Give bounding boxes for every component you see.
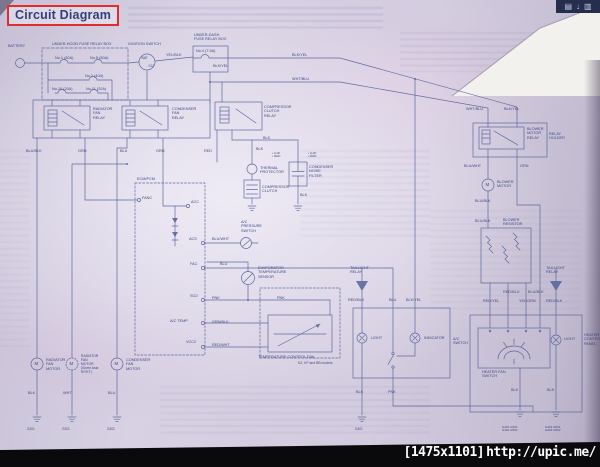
wire-blu-wht-2: BLU/WHT bbox=[464, 164, 481, 168]
radiator-fan-relay-label: RADIATOR FAN RELAY bbox=[93, 107, 112, 120]
wire-blk-6: BLK bbox=[547, 388, 554, 392]
taillight-relay-label-2: TAILLIGHT RELAY bbox=[546, 266, 565, 275]
filter-lhd-rhd-left: • LHD • RHD bbox=[272, 152, 280, 159]
fuse-no10-label: No.10 (20A) bbox=[52, 87, 72, 91]
evaporator-sensor-label: EVAPORATOR TEMPERATURE SENSOR bbox=[258, 266, 286, 279]
motor-m-2: M bbox=[70, 361, 74, 366]
page-title-text: Circuit Diagram bbox=[15, 8, 111, 22]
ac-switch-label: A/C SWITCH bbox=[453, 337, 468, 346]
ac-pressure-switch-label: A/C PRESSURE SWITCH bbox=[241, 220, 262, 233]
ecm-pcm-label: ECM/PCM bbox=[137, 177, 155, 181]
wire-yel-grn-1: YEL/GRN bbox=[519, 299, 536, 303]
condenser-fan-relay-label: CONDENSER FAN RELAY bbox=[172, 107, 196, 120]
wire-blu-1: BLU bbox=[120, 149, 127, 153]
wire-yel-blk-1: YEL/BLK bbox=[166, 53, 181, 57]
taillight-relay-label-1: TAILLIGHT RELAY bbox=[350, 266, 369, 275]
wire-blk-3: BLK bbox=[300, 193, 307, 197]
relay-holder-label: RELAY HOLDER bbox=[549, 132, 565, 141]
condenser-fan-motor-label: CONDENSER FAN MOTOR bbox=[126, 358, 150, 371]
diagram-labels: BATTERYUNDER-HOOD FUSE RELAY BOXNo.1 (80… bbox=[0, 0, 600, 467]
ecm-acc-terminal: ACC bbox=[191, 200, 199, 204]
ground-g401-label: G401 bbox=[355, 428, 363, 432]
heater-fan-switch-label: HEATER FAN SWITCH bbox=[482, 370, 506, 379]
radiator-fan-motor-2-label: RADIATOR FAN MOTOR (Some Asia KF/KT) bbox=[81, 355, 98, 375]
blower-resistor-label: BLOWER RESISTOR bbox=[503, 218, 522, 227]
ecm-sg2-terminal: SG2 bbox=[190, 294, 198, 298]
wire-blu-blk-3: BLU/BLK bbox=[475, 219, 491, 223]
wire-red-blu-1: RED/BLU bbox=[503, 290, 519, 294]
wire-grn-3: GRN bbox=[520, 164, 528, 168]
motor-m-blower: M bbox=[486, 182, 490, 187]
wire-grn-2: GRN bbox=[156, 149, 164, 153]
ecm-fanc-terminal: FANC bbox=[142, 196, 152, 200]
compressor-clutch-relay-label: COMPRESSOR CLUTCH RELAY bbox=[264, 105, 291, 118]
watermark-text: [1475x1101]http://upic.me/ bbox=[404, 445, 597, 460]
compressor-clutch-label: COMPRESSOR CLUTCH bbox=[262, 185, 289, 194]
wire-grn-blk-1: GRN/BLK bbox=[212, 320, 229, 324]
motor-m-1: M bbox=[35, 361, 39, 366]
ground-g201-label-2: G201 bbox=[62, 428, 70, 432]
wire-blk-7: BLK bbox=[28, 391, 35, 395]
wire-blk-yel-2: BLK/YEL bbox=[213, 64, 228, 68]
wire-red-blk-2: RED/BLK bbox=[546, 299, 562, 303]
photo-of-circuit-diagram-page: BATTERYUNDER-HOOD FUSE RELAY BOXNo.1 (80… bbox=[0, 0, 600, 467]
blower-motor-relay-label: BLOWER MOTOR RELAY bbox=[527, 127, 543, 140]
wire-blu-blk-2: BLU/BLK bbox=[475, 199, 491, 203]
condenser-noise-filter-label: CONDENSER NOISE FILTER bbox=[309, 165, 333, 178]
wire-blk-yel-4: BLK/YEL bbox=[504, 107, 519, 111]
fuse-no1-label: No.1 (80A) bbox=[55, 56, 73, 60]
ecm-fac-terminal: FAC bbox=[190, 262, 197, 266]
ac-switch-light-label: LIGHT bbox=[371, 336, 382, 340]
ac-switch-indicator-label: INDICATOR bbox=[424, 336, 445, 340]
wire-wht-blu-1: WHT/BLU bbox=[292, 77, 309, 81]
temp-control-dial-label: TEMPERATURE CONTROL DIAL bbox=[258, 355, 315, 359]
panel-grid-icon[interactable]: ▥ bbox=[584, 3, 592, 11]
wire-red-1: RED bbox=[204, 149, 212, 153]
wire-blk-yel-1: BLK/YEL bbox=[292, 53, 307, 57]
radiator-fan-motor-label: RADIATOR FAN MOTOR bbox=[46, 358, 65, 371]
wire-blu-2: BLU bbox=[220, 262, 227, 266]
ground-g201-label-1: G201 bbox=[27, 428, 35, 432]
wire-grn-1: GRN bbox=[78, 149, 86, 153]
wire-wht-1: WHT bbox=[63, 391, 72, 395]
ignition-switch-label: IGNITION SWITCH bbox=[128, 42, 161, 46]
ecm-acs-terminal: ACS bbox=[189, 237, 197, 241]
temp-dial-models-note: KZ, KF and BB models bbox=[298, 362, 333, 366]
fuse-no5-label: No.5 (80A) bbox=[90, 56, 108, 60]
ignition-ig2-terminal: IG2 bbox=[149, 65, 154, 69]
ecm-vcc2-terminal: VCC2 bbox=[186, 340, 196, 344]
watermark-url[interactable]: http://upic.me/ bbox=[486, 445, 596, 460]
ground-labels-left: G401 G501 G402 G502 bbox=[502, 426, 518, 433]
download-arrow-icon[interactable]: ↓ bbox=[576, 3, 580, 11]
wire-blk-yel-3: BLK/YEL bbox=[406, 298, 421, 302]
wire-blu-blk-1: BLU/BLK bbox=[26, 149, 42, 153]
page-gutter-shadow bbox=[584, 60, 600, 450]
ignition-bat-terminal: BAT bbox=[142, 57, 148, 61]
ecm-actemp-terminal: A/C TEMP bbox=[170, 319, 188, 323]
wire-pnk-3: PNK bbox=[388, 390, 396, 394]
wire-blu-blk-4: BLU/BLK bbox=[528, 290, 544, 294]
motor-m-3: M bbox=[115, 361, 119, 366]
thermal-protector-label: THERMAL PROTECTOR bbox=[260, 166, 284, 175]
wire-red-yel-1: RED/YEL bbox=[483, 299, 499, 303]
battery-label: BATTERY bbox=[8, 44, 25, 48]
wire-red-blk-1: RED/BLK bbox=[348, 298, 364, 302]
heater-light-label: LIGHT bbox=[564, 337, 575, 341]
underdash-box-label: UNDER-DASH FUSE RELAY BOX bbox=[194, 33, 226, 42]
wire-blu-3: BLU bbox=[389, 298, 396, 302]
wire-wht-blu-2: WHT/BLU bbox=[466, 107, 483, 111]
fuse-no2-label: No.2 (40A) bbox=[85, 74, 103, 78]
wire-pnk-2: PNK bbox=[277, 296, 285, 300]
blower-motor-label: BLOWER MOTOR bbox=[497, 180, 513, 189]
wire-blu-wht-1: BLU/WHT bbox=[212, 237, 229, 241]
watermark-resolution: [1475x1101] bbox=[404, 445, 485, 460]
filter-lhd-rhd-right: • LHD • RHD bbox=[308, 152, 316, 159]
wire-blk-4: BLK bbox=[356, 390, 363, 394]
wire-pnk-1: PNK bbox=[212, 296, 220, 300]
panel-grid-icon[interactable]: ▤ bbox=[564, 3, 572, 11]
underhood-box-label: UNDER-HOOD FUSE RELAY BOX bbox=[52, 42, 112, 46]
wire-blu-4: BLU bbox=[108, 391, 115, 395]
wire-blk-1: BLK bbox=[263, 136, 270, 140]
fuse-no11-label: No.11 (20A) bbox=[86, 87, 106, 91]
ground-g202-label: G202 bbox=[107, 428, 115, 432]
ground-labels-right: G401 G501 G402 G502 bbox=[545, 426, 561, 433]
page-title: Circuit Diagram bbox=[7, 5, 119, 26]
fuse-no4-label: No.4 (7.5A) bbox=[196, 49, 215, 53]
wire-blk-5: BLK bbox=[511, 388, 518, 392]
wire-blk-2: BLK bbox=[256, 147, 263, 151]
wire-red-wht-1: RED/WHT bbox=[212, 343, 230, 347]
image-host-toolbar[interactable]: ▤ ↓ ▥ bbox=[556, 0, 600, 13]
